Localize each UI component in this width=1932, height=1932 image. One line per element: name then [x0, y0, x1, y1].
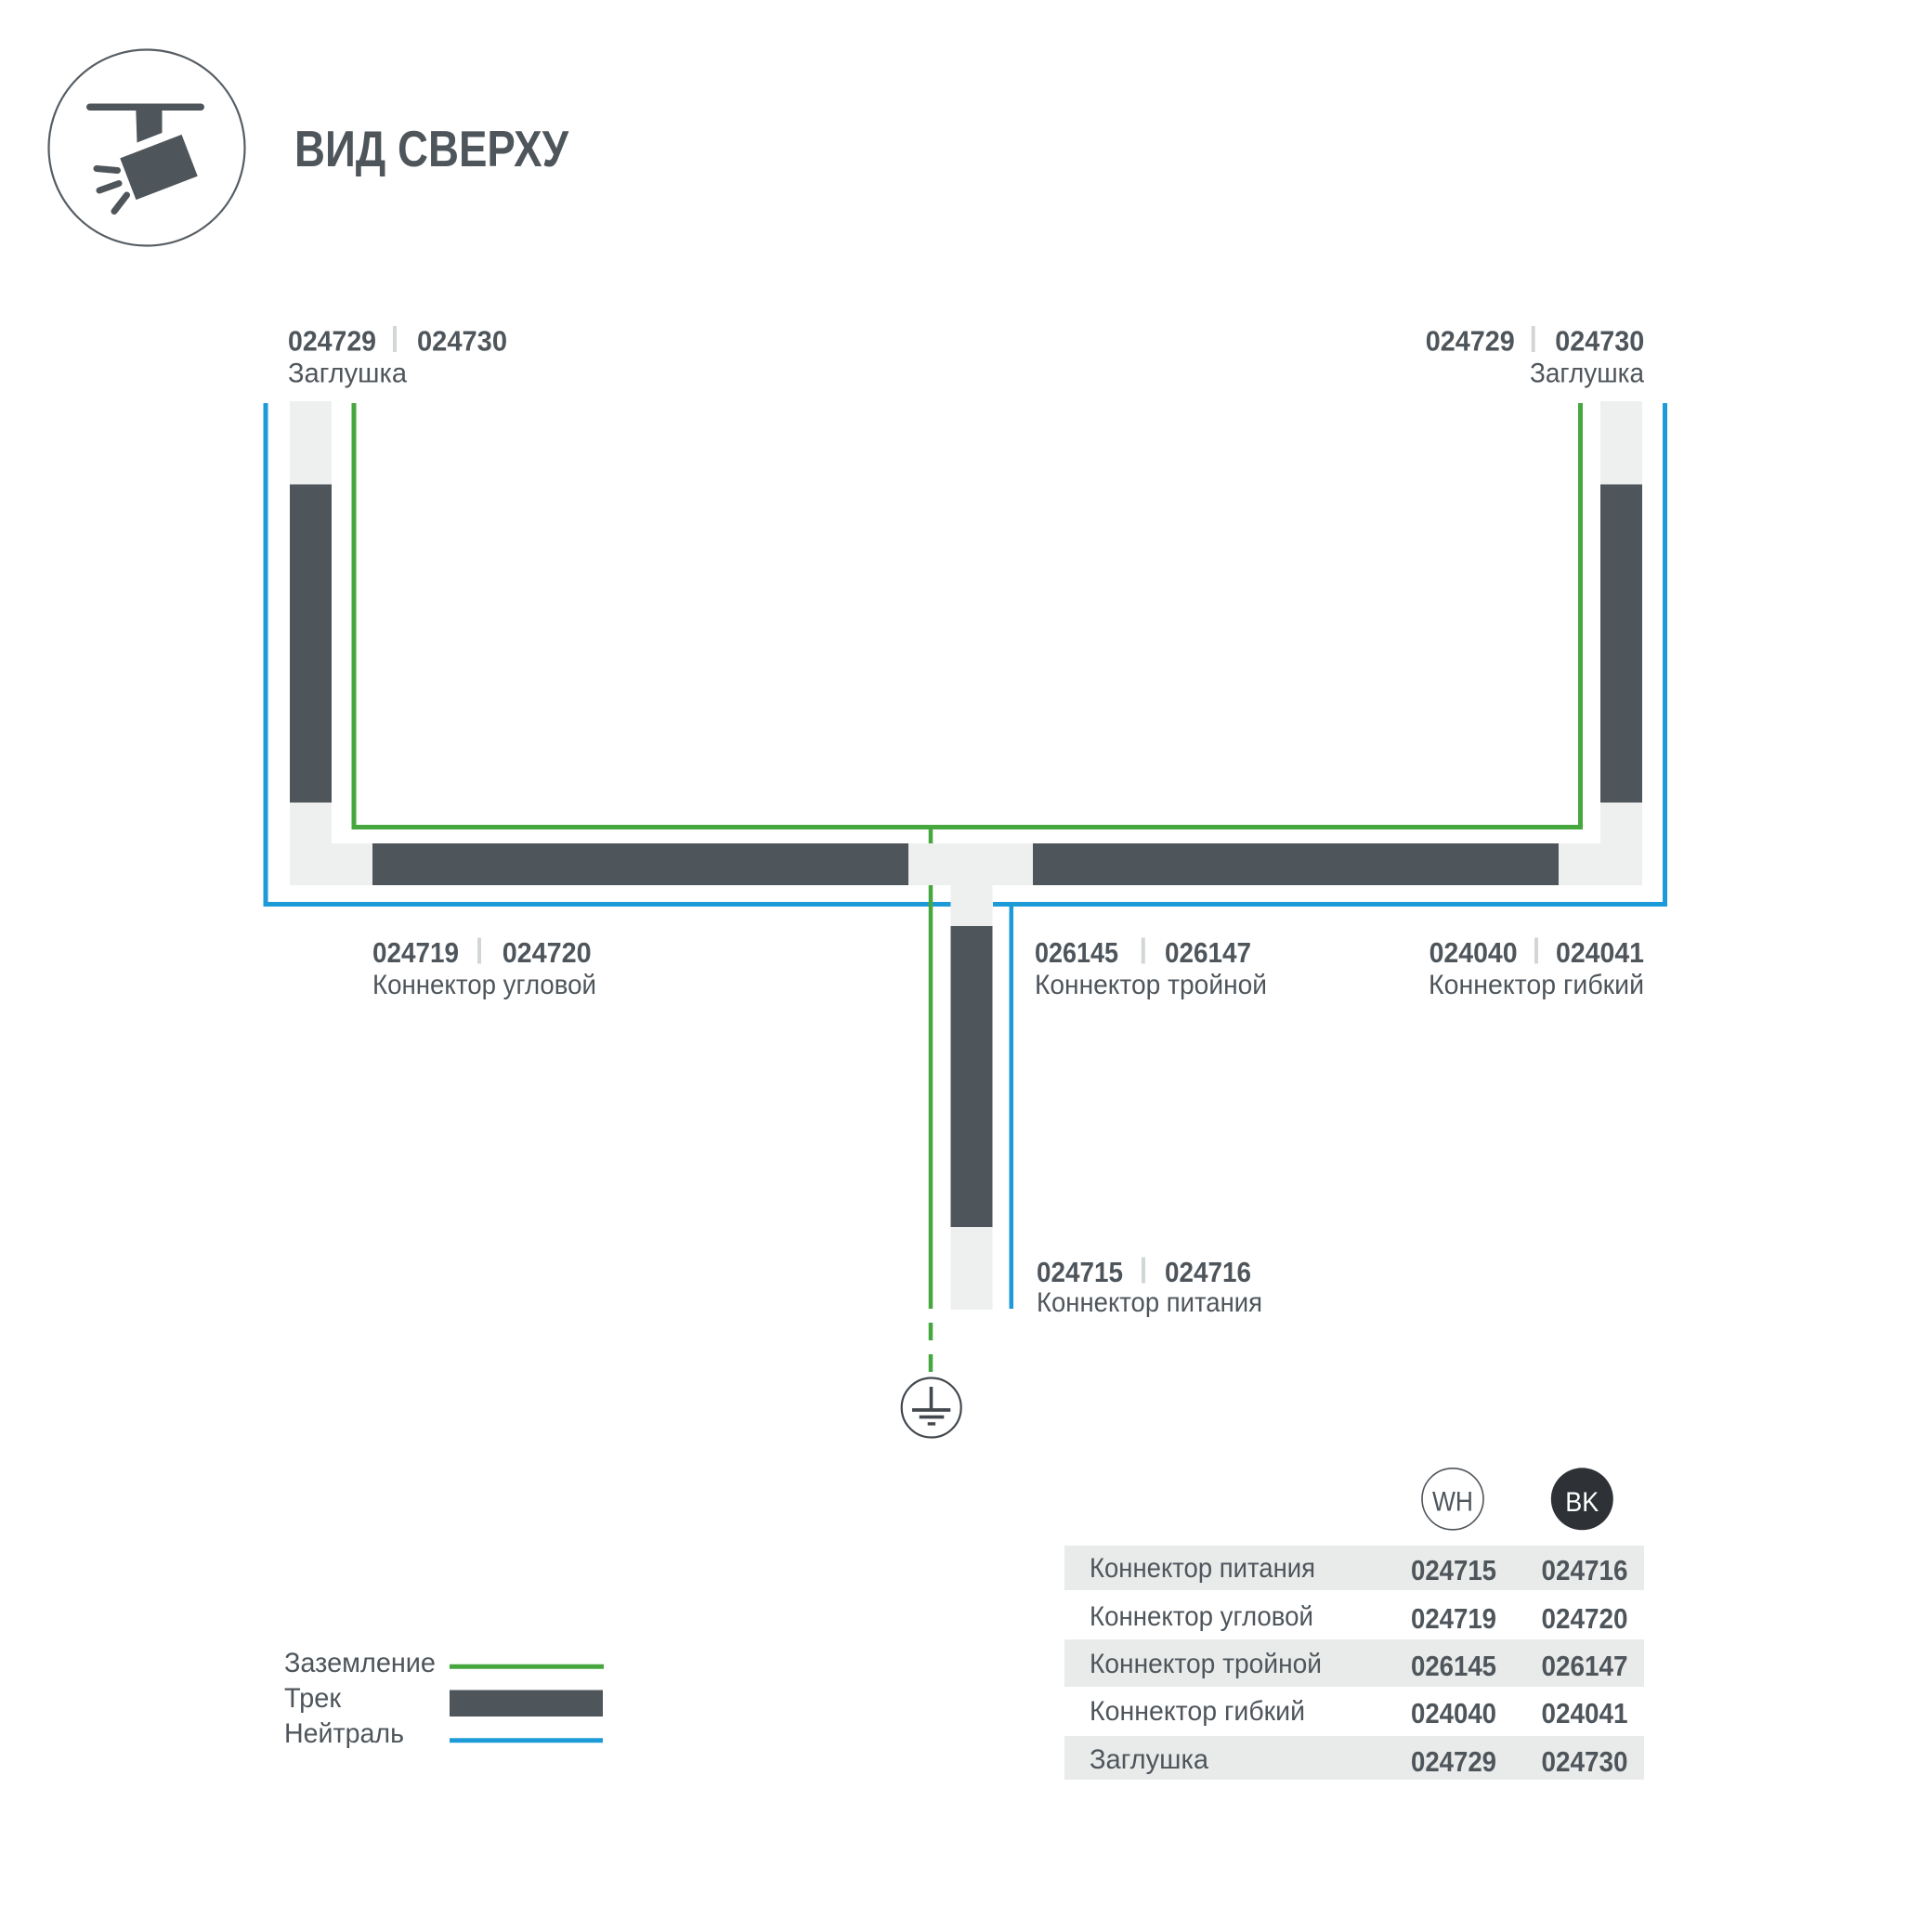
svg-text:024041: 024041	[1542, 1697, 1628, 1730]
svg-text:ВИД СВЕРХУ: ВИД СВЕРХУ	[294, 120, 569, 177]
svg-text:024720: 024720	[503, 936, 592, 969]
svg-text:024720: 024720	[1542, 1602, 1628, 1635]
svg-text:024730: 024730	[1555, 325, 1644, 358]
svg-text:Коннектор гибкий: Коннектор гибкий	[1090, 1696, 1305, 1727]
svg-text:Заглушка: Заглушка	[1090, 1744, 1208, 1775]
svg-text:024716: 024716	[1542, 1554, 1628, 1586]
svg-text:026147: 026147	[1542, 1650, 1628, 1682]
svg-text:Заземление: Заземление	[284, 1648, 436, 1678]
svg-text:Коннектор тройной: Коннектор тройной	[1035, 970, 1267, 1000]
svg-text:Коннектор тройной: Коннектор тройной	[1090, 1649, 1322, 1679]
svg-text:024040: 024040	[1429, 936, 1518, 969]
svg-text:024730: 024730	[417, 325, 507, 358]
svg-text:024719: 024719	[372, 936, 459, 969]
svg-text:024729: 024729	[288, 325, 376, 358]
svg-text:024041: 024041	[1556, 936, 1644, 969]
svg-text:Нейтраль: Нейтраль	[284, 1718, 404, 1749]
svg-text:Коннектор гибкий: Коннектор гибкий	[1429, 970, 1644, 1000]
svg-text:024730: 024730	[1542, 1745, 1628, 1778]
svg-text:024715: 024715	[1037, 1256, 1123, 1288]
svg-text:BK: BK	[1565, 1487, 1599, 1518]
svg-text:024719: 024719	[1411, 1602, 1496, 1635]
svg-text:024729: 024729	[1411, 1745, 1496, 1778]
svg-text:Коннектор питания: Коннектор питания	[1090, 1553, 1315, 1584]
svg-text:Коннектор угловой: Коннектор угловой	[372, 970, 596, 1000]
svg-text:WH: WH	[1432, 1487, 1473, 1518]
svg-text:Трек: Трек	[284, 1683, 342, 1714]
svg-text:Коннектор угловой: Коннектор угловой	[1090, 1601, 1313, 1632]
svg-text:024040: 024040	[1411, 1697, 1496, 1730]
svg-text:024715: 024715	[1411, 1554, 1496, 1586]
svg-text:026145: 026145	[1035, 936, 1118, 969]
svg-text:Коннектор питания: Коннектор питания	[1037, 1287, 1262, 1318]
svg-text:026147: 026147	[1165, 936, 1251, 969]
svg-text:024716: 024716	[1165, 1256, 1251, 1288]
svg-text:Заглушка: Заглушка	[1530, 359, 1644, 389]
svg-text:026145: 026145	[1411, 1650, 1496, 1682]
svg-text:Заглушка: Заглушка	[288, 359, 407, 389]
svg-text:024729: 024729	[1426, 325, 1515, 358]
